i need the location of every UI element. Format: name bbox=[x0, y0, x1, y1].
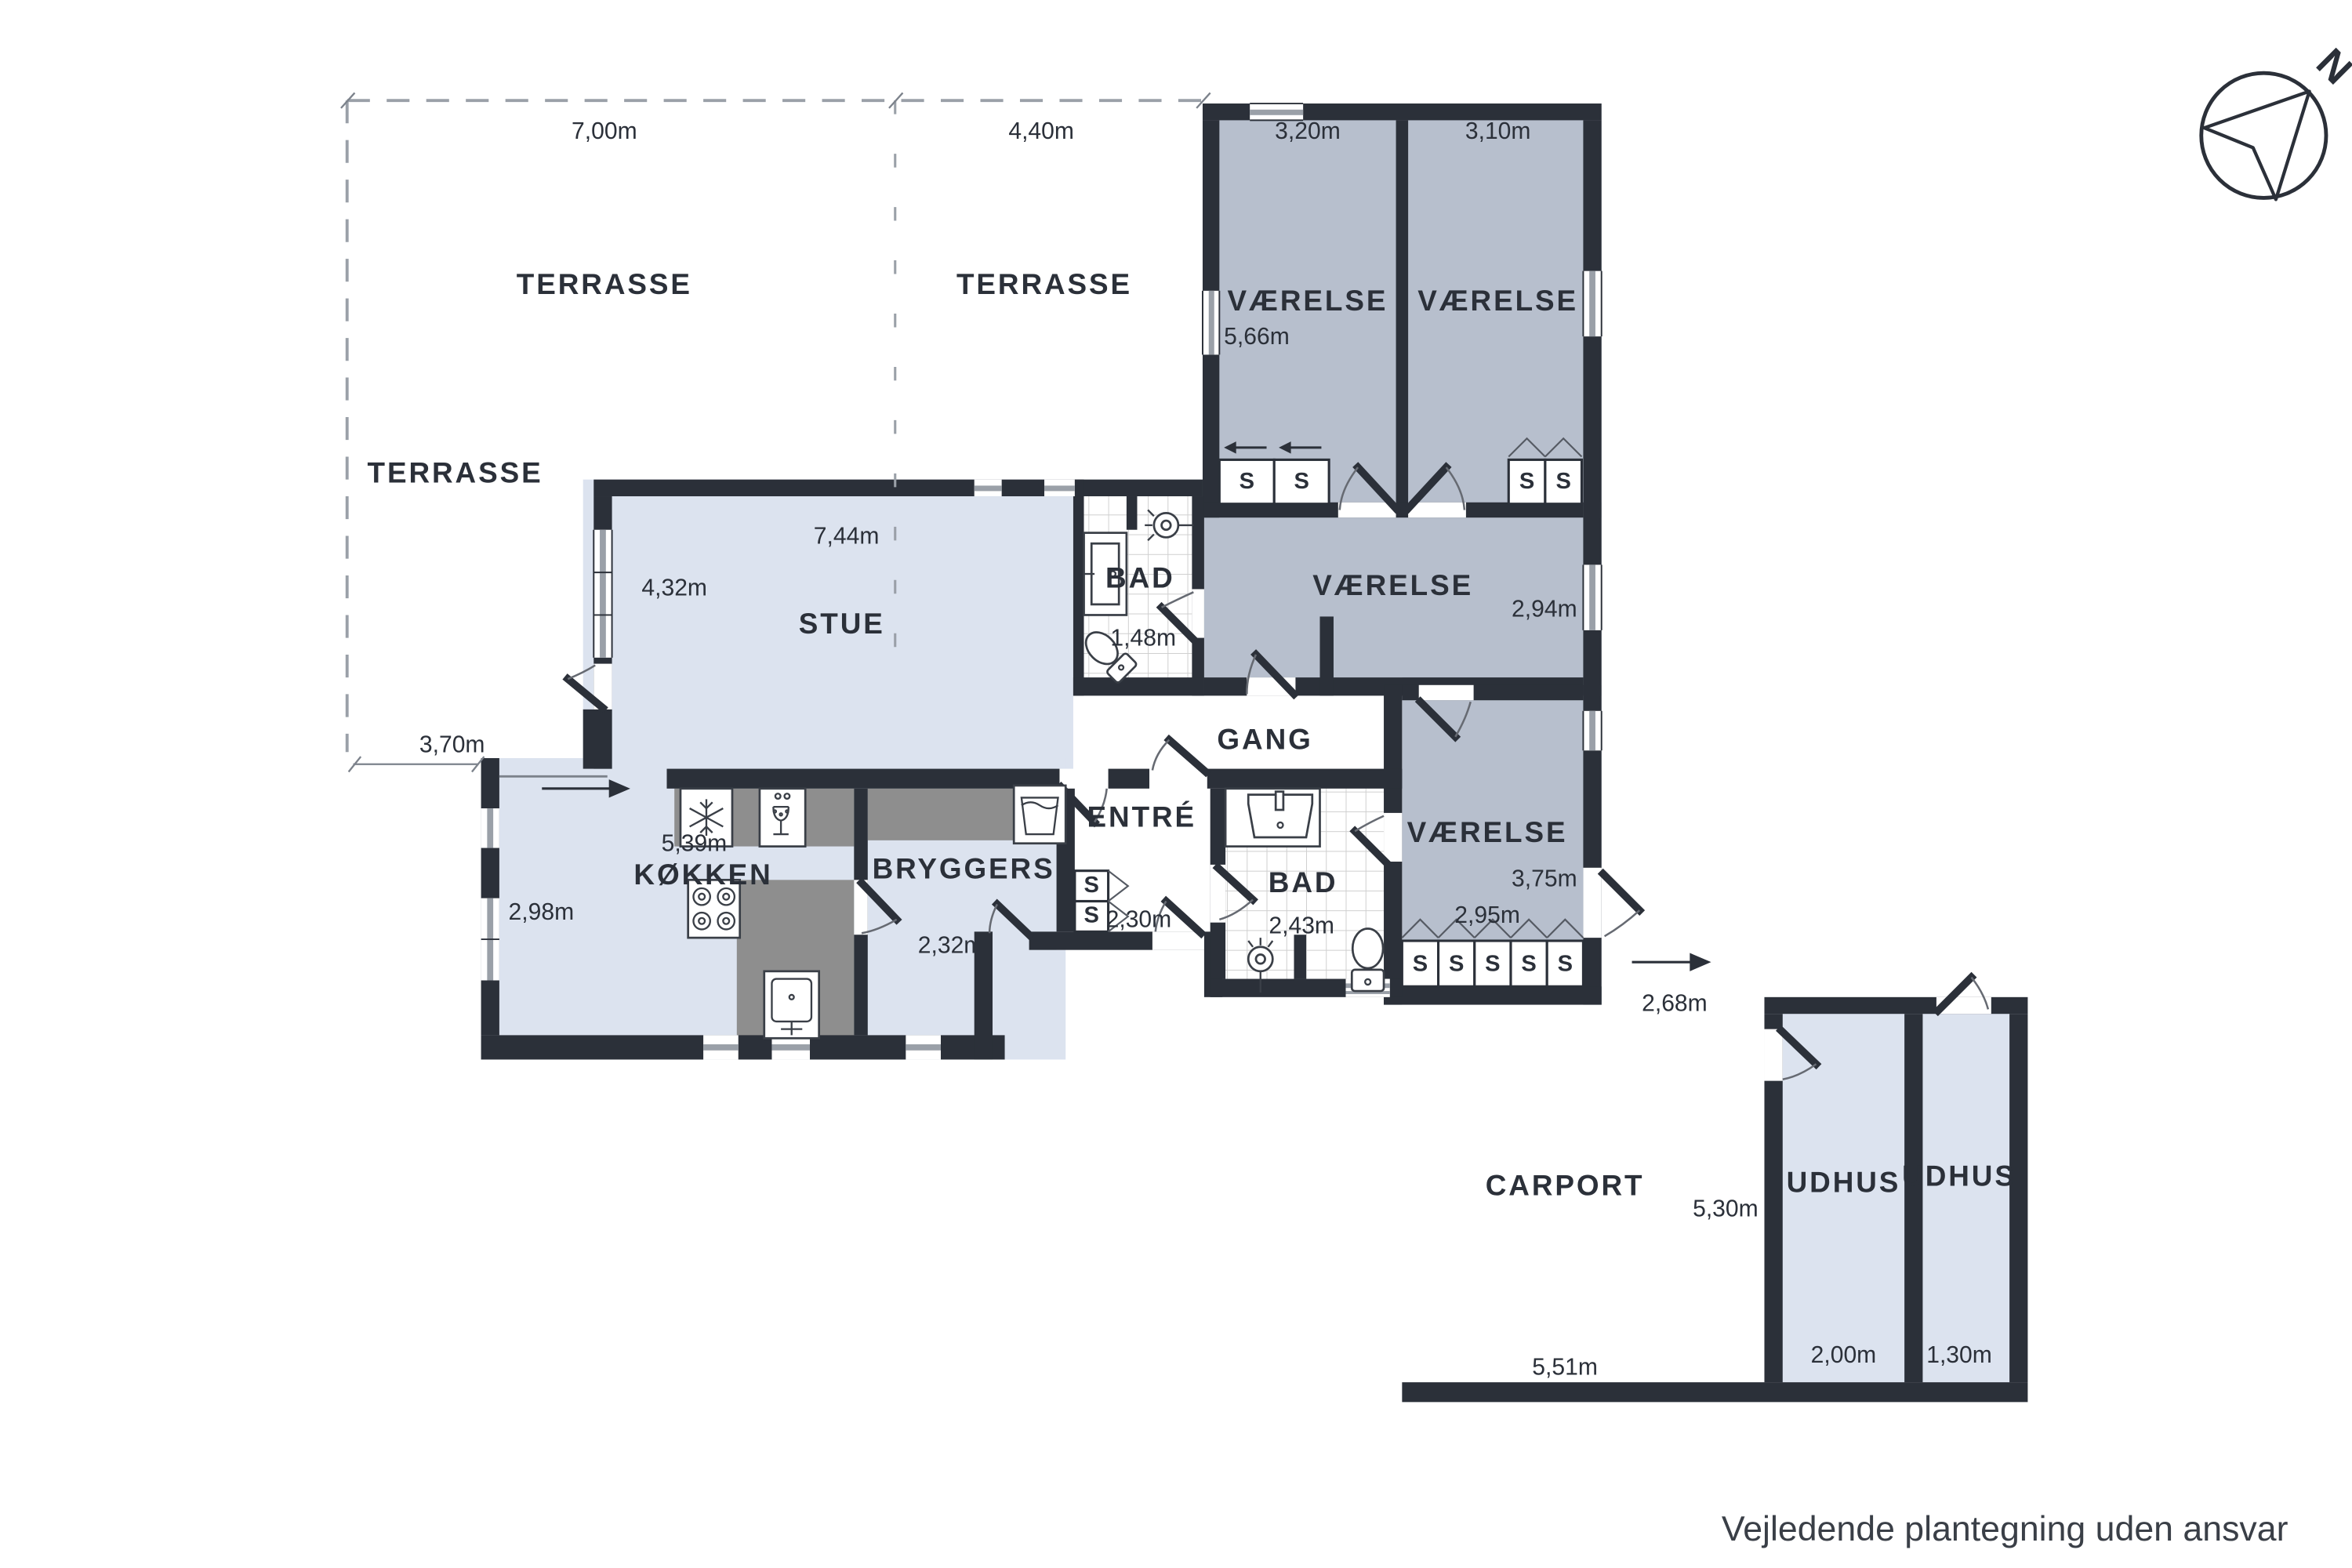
footer-disclaimer: Vejledende plantegning uden ansvar bbox=[1722, 1510, 2288, 1548]
dim-bath2-width: 2,43m bbox=[1269, 913, 1334, 938]
compass-north-label: N bbox=[2307, 40, 2352, 93]
door-bedroom4-exterior bbox=[1603, 874, 1640, 937]
closet-letter: S bbox=[1558, 952, 1573, 977]
laundry-basin-icon bbox=[1014, 786, 1065, 844]
room-label-bedroom1: VÆRELSE bbox=[1228, 285, 1388, 317]
path-arrow-icon bbox=[1632, 953, 1711, 971]
window-icon bbox=[1583, 711, 1601, 750]
closet-letter: S bbox=[1519, 469, 1534, 494]
dim-bath1-width: 1,48m bbox=[1110, 625, 1176, 651]
closet-letter: S bbox=[1294, 469, 1308, 494]
room-label-carport: CARPORT bbox=[1486, 1169, 1645, 1201]
closet-letter: S bbox=[1555, 469, 1570, 494]
room-label-udhus1: UDHUS bbox=[1787, 1166, 1901, 1198]
room-label-terrasse3: TERRASSE bbox=[368, 457, 543, 489]
dim-stue-depth: 4,32m bbox=[641, 575, 707, 601]
closet-letter: S bbox=[1240, 469, 1254, 494]
room-label-bedroom3: VÆRELSE bbox=[1312, 569, 1473, 601]
kitchen-sink-icon bbox=[764, 971, 819, 1038]
dim-bedroom1-width: 3,20m bbox=[1275, 118, 1341, 144]
room-label-terrasse1: TERRASSE bbox=[517, 268, 692, 300]
room-label-bryggers: BRYGGERS bbox=[873, 852, 1055, 884]
closet-letter: S bbox=[1084, 903, 1099, 928]
dim-bedroom4-width: 2,95m bbox=[1454, 902, 1520, 928]
window-icon bbox=[593, 530, 612, 658]
room-label-kokken: KØKKEN bbox=[633, 858, 772, 891]
floorplan-canvas: S S S S S S S S S S S bbox=[0, 0, 2352, 1568]
dim-carport-width: 5,51m bbox=[1532, 1355, 1598, 1381]
dim-kokken-width: 5,39m bbox=[662, 831, 728, 857]
window-icon bbox=[1583, 271, 1601, 336]
room-label-bedroom2: VÆRELSE bbox=[1417, 285, 1578, 317]
dim-bedroom4-depth: 3,75m bbox=[1512, 866, 1577, 891]
dim-bedroom2-width: 3,10m bbox=[1465, 118, 1531, 144]
compass-icon: N bbox=[2201, 40, 2352, 199]
dim-udhus2-width: 1,30m bbox=[1926, 1342, 1992, 1368]
room-label-entre: ENTRÉ bbox=[1087, 800, 1197, 833]
dim-bedroom1-depth: 5,66m bbox=[1224, 324, 1290, 350]
dim-path: 2,68m bbox=[1642, 991, 1708, 1017]
dim-terrace1-width: 7,00m bbox=[572, 118, 637, 144]
window-icon bbox=[1203, 291, 1219, 355]
room-label-bath1: BAD bbox=[1105, 562, 1175, 594]
toilet-icon bbox=[1352, 928, 1384, 991]
room-label-udhus2: UDHUS bbox=[1902, 1160, 2016, 1192]
closet-letter: S bbox=[1485, 952, 1500, 977]
sink-icon bbox=[1225, 789, 1319, 847]
dim-kokken-depth: 2,98m bbox=[509, 899, 575, 925]
room-label-gang: GANG bbox=[1217, 723, 1312, 755]
dim-terrace3-width: 3,70m bbox=[419, 731, 485, 757]
dim-udhus1-width: 2,00m bbox=[1811, 1342, 1877, 1368]
closet-letter: S bbox=[1521, 952, 1536, 977]
room-label-stue: STUE bbox=[799, 608, 885, 640]
dim-carport-depth: 5,30m bbox=[1693, 1196, 1759, 1222]
room-label-terrasse2: TERRASSE bbox=[956, 268, 1132, 300]
window-icon bbox=[1583, 564, 1601, 630]
dim-entre-width: 2,30m bbox=[1106, 907, 1172, 933]
room-label-bath2: BAD bbox=[1269, 866, 1338, 898]
dim-bedroom3-depth: 2,94m bbox=[1512, 597, 1577, 622]
closet-letter: S bbox=[1449, 952, 1464, 977]
closet-letter: S bbox=[1413, 952, 1428, 977]
dim-terrace2-width: 4,40m bbox=[1008, 118, 1074, 144]
closet-letter: S bbox=[1084, 873, 1099, 898]
dim-bryggers-width: 2,32m bbox=[918, 933, 984, 959]
dishwasher-icon bbox=[760, 789, 805, 847]
room-label-bedroom4: VÆRELSE bbox=[1407, 816, 1568, 848]
dim-stue-width: 7,44m bbox=[814, 523, 880, 549]
